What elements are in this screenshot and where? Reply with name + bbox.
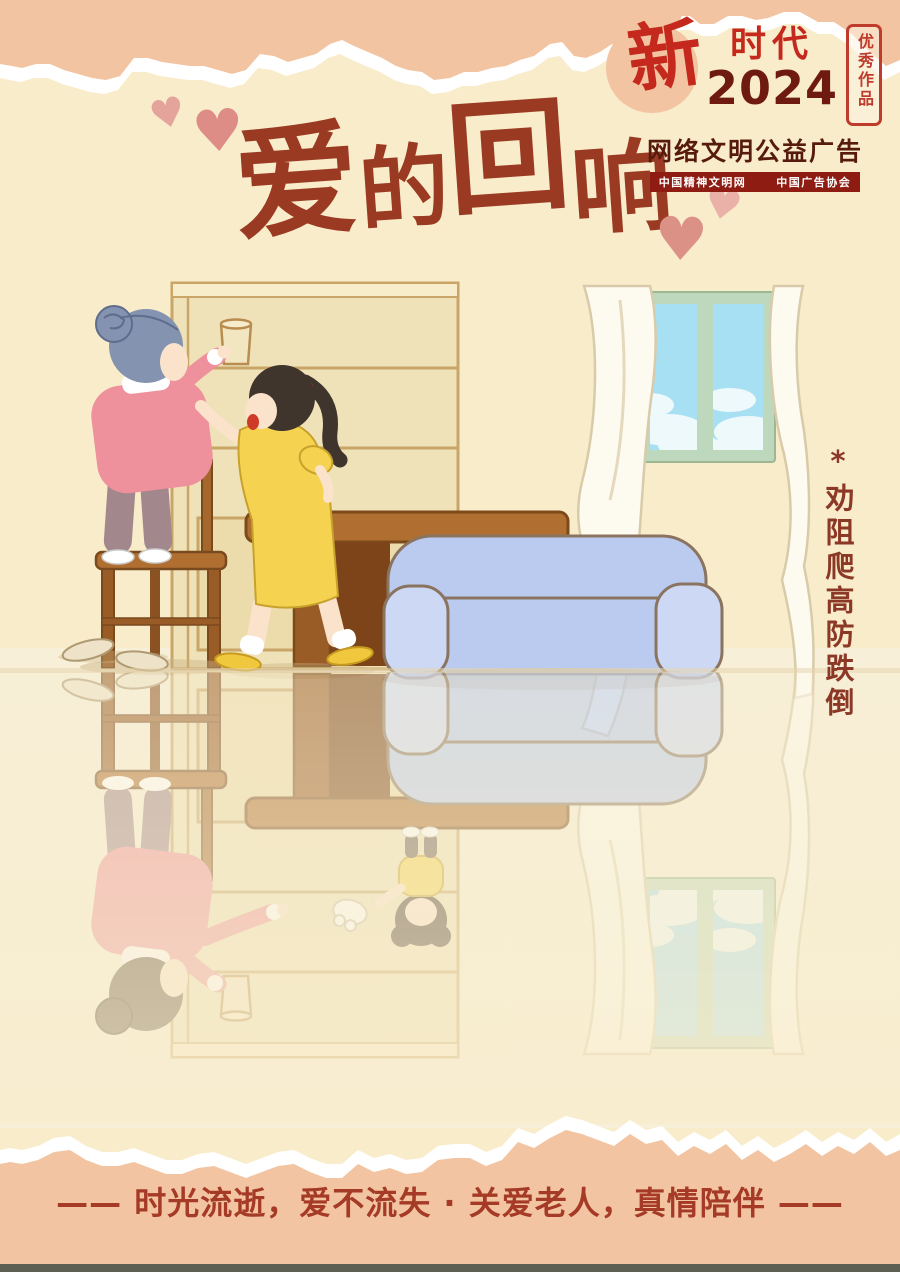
poster: 新 时代 2024 优秀作品 网络文明公益广告 中国精神文明网 中国广告协会 爱… xyxy=(0,0,900,1272)
badge-banner: 中国精神文明网 中国广告协会 xyxy=(650,172,861,192)
badge-year: 2024 xyxy=(706,65,838,111)
banner-org-left: 中国精神文明网 xyxy=(659,174,747,190)
title-char-1: 爱 xyxy=(230,117,362,249)
curtain-right xyxy=(770,286,814,698)
badge-subtitle: 网络文明公益广告 xyxy=(647,132,863,168)
badge-brand-word: 时代 xyxy=(730,26,814,62)
badge-logo-row: 新 时代 2024 优秀作品 xyxy=(628,22,882,126)
heart-icon: ♥ xyxy=(653,209,709,271)
mirror-line xyxy=(0,668,900,673)
title-char-2: 的 xyxy=(356,140,452,236)
bottom-bar xyxy=(0,1264,900,1272)
banner-org-right: 中国广告协会 xyxy=(776,174,851,190)
heart-icon: ♥ xyxy=(190,100,246,161)
badge-brand-column: 时代 2024 xyxy=(706,26,838,111)
floor-reflection-of-past xyxy=(0,604,900,1124)
safety-side-note: *劝阻爬高防跌倒 xyxy=(823,444,852,721)
poster-title: 爱 的 回 响 xyxy=(230,95,674,249)
title-char-3: 回 xyxy=(443,92,573,222)
badge-brand-char: 新 xyxy=(623,17,706,97)
bottom-slogan: —— 时光流逝，爱不流失 · 关爱老人，真情陪伴 —— xyxy=(0,1178,900,1224)
award-badge: 新 时代 2024 优秀作品 网络文明公益广告 中国精神文明网 中国广告协会 xyxy=(628,22,882,192)
excellence-seal: 优秀作品 xyxy=(846,24,882,126)
sofa xyxy=(384,536,722,678)
